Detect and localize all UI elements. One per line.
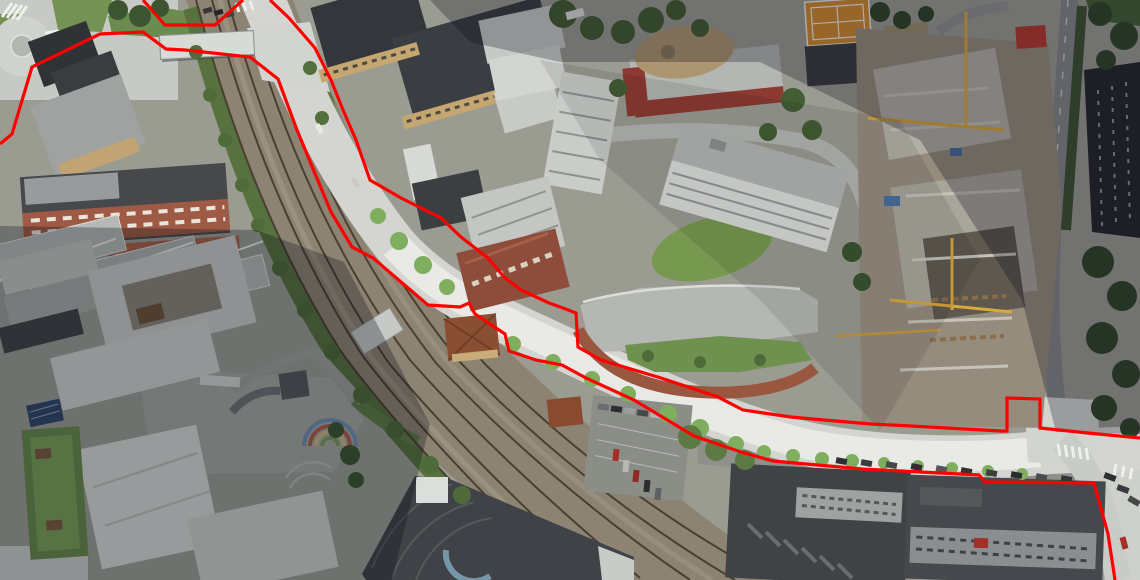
car-lot-6 <box>622 460 629 473</box>
container-red <box>974 538 988 548</box>
tree-rail-3 <box>218 133 232 147</box>
tree-nw-2 <box>129 5 151 27</box>
car-lot-red-1 <box>612 449 619 462</box>
building-h-tree-3 <box>754 354 766 366</box>
car-lot-red-2 <box>632 470 639 483</box>
car-lot-7 <box>643 480 650 493</box>
tree-rail-2 <box>203 88 217 102</box>
tree-nw-1 <box>108 0 128 20</box>
tree-rail-4 <box>235 178 249 192</box>
tree-rail-11 <box>421 456 439 474</box>
tree-station-west-1 <box>303 61 317 75</box>
tree-station-west-2 <box>315 111 329 125</box>
building-fan-tower <box>416 477 448 503</box>
tree-street-1 <box>370 208 386 224</box>
aerial-photo-map[interactable] <box>0 0 1140 580</box>
building-se-2-facade <box>909 527 1096 569</box>
tree-rail-12 <box>453 486 471 504</box>
tree-street-15 <box>845 454 859 468</box>
tree-rail-5 <box>251 218 265 232</box>
building-h-tree-1 <box>642 350 654 362</box>
building-h-tree-2 <box>694 356 706 368</box>
tree-street-2 <box>390 232 408 250</box>
aerial-map-svg <box>0 0 1140 580</box>
shed-brown-roof <box>547 396 584 427</box>
building-se-2-roof-patch <box>920 487 983 507</box>
tree-street-3 <box>414 256 432 274</box>
car-lot-8 <box>654 488 661 501</box>
tree-street-4 <box>439 279 455 295</box>
